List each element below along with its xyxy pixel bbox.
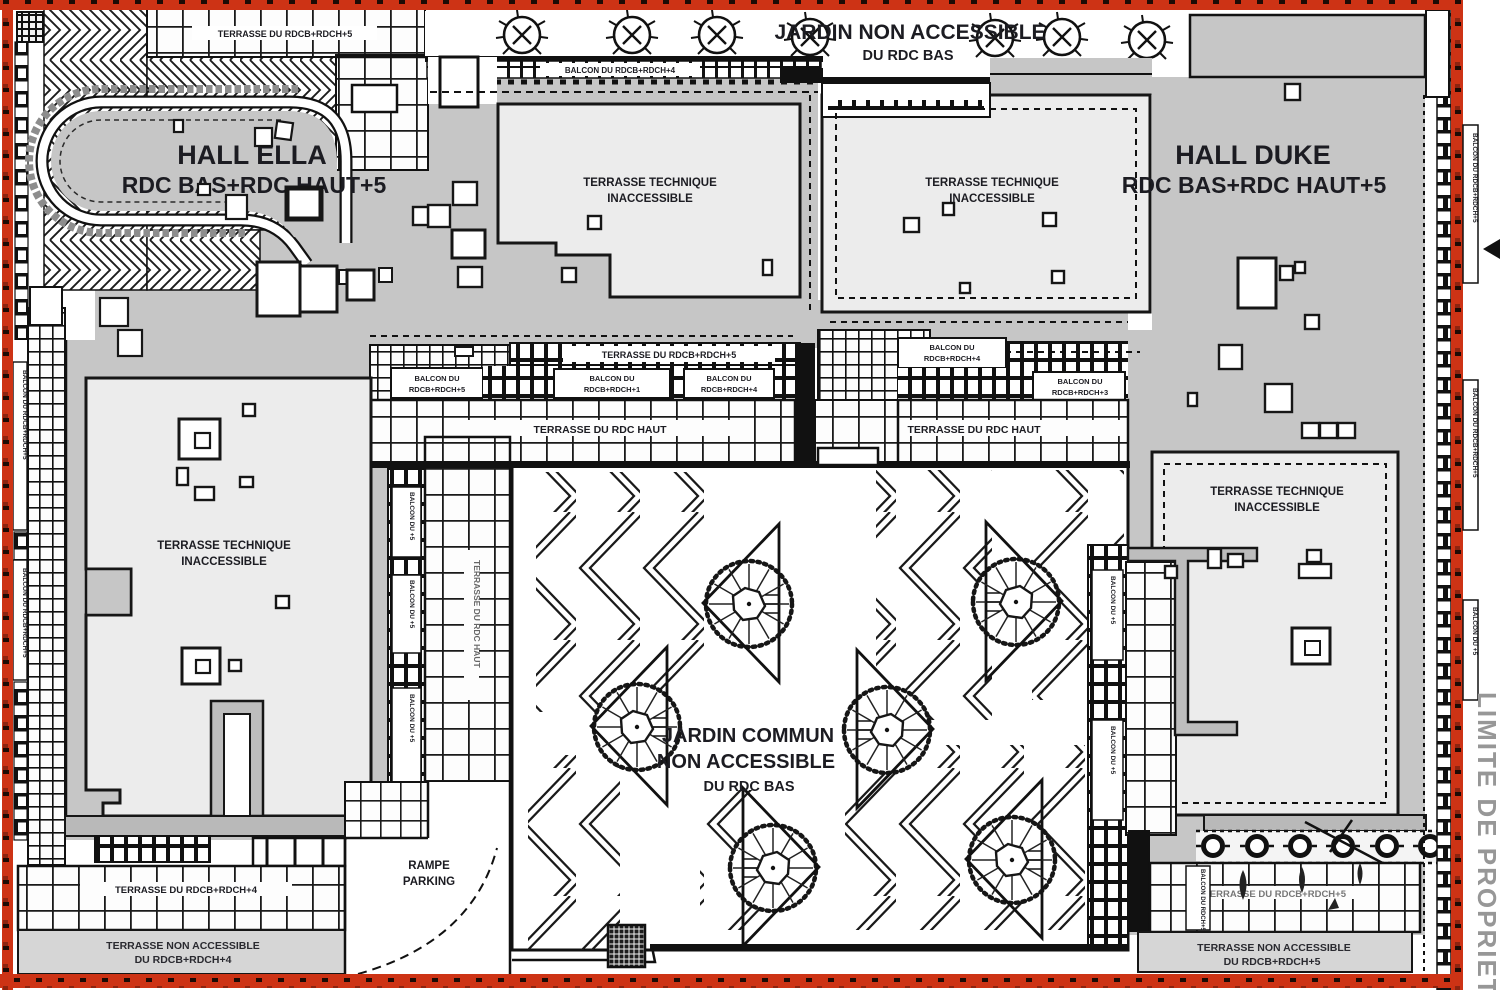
svg-text:INACCESSIBLE: INACCESSIBLE xyxy=(607,193,693,205)
svg-text:TERRASSE TECHNIQUE: TERRASSE TECHNIQUE xyxy=(583,177,717,189)
svg-text:BALCON DU RDCB+RDCH+4: BALCON DU RDCB+RDCH+4 xyxy=(565,66,676,75)
svg-text:BALCON DU: BALCON DU xyxy=(590,374,635,383)
svg-text:TERRASSE DU RDC HAUT: TERRASSE DU RDC HAUT xyxy=(907,424,1041,436)
svg-text:BALCON DU: BALCON DU xyxy=(930,343,975,352)
svg-text:TERRASSE NON ACCESSIBLE: TERRASSE NON ACCESSIBLE xyxy=(106,940,260,952)
svg-text:BALCON DU +5: BALCON DU +5 xyxy=(1109,576,1116,625)
svg-text:RDCB+RDCH+4: RDCB+RDCH+4 xyxy=(701,385,758,394)
svg-text:TERRASSE DU RDCB+RDCH+5: TERRASSE DU RDCB+RDCH+5 xyxy=(1204,889,1347,900)
svg-text:RDCB+RDCH+1: RDCB+RDCH+1 xyxy=(584,385,640,394)
svg-text:TERRASSE DU RDCB+RDCH+5: TERRASSE DU RDCB+RDCH+5 xyxy=(602,350,737,360)
svg-text:BALCON DU: BALCON DU xyxy=(415,374,460,383)
svg-text:DU RDC BAS: DU RDC BAS xyxy=(703,779,794,795)
svg-text:BALCON DU +5: BALCON DU +5 xyxy=(408,580,415,629)
svg-text:BALCON DU RDCB+RDCH+5: BALCON DU RDCB+RDCH+5 xyxy=(1471,388,1478,478)
svg-text:RAMPE: RAMPE xyxy=(408,860,450,872)
svg-text:INACCESSIBLE: INACCESSIBLE xyxy=(181,556,267,568)
svg-text:DU RDCB+RDCH+4: DU RDCB+RDCH+4 xyxy=(135,954,232,966)
svg-text:NON ACCESSIBLE: NON ACCESSIBLE xyxy=(657,751,835,773)
svg-text:BALCON DU +5: BALCON DU +5 xyxy=(408,694,415,743)
svg-text:JARDIN COMMUN: JARDIN COMMUN xyxy=(662,725,834,747)
svg-text:INACCESSIBLE: INACCESSIBLE xyxy=(949,193,1035,205)
svg-text:TERRASSE TECHNIQUE: TERRASSE TECHNIQUE xyxy=(157,540,291,552)
svg-text:BALCON DU: BALCON DU xyxy=(1058,377,1103,386)
svg-text:BALCON DU +5: BALCON DU +5 xyxy=(1109,726,1116,775)
svg-text:TERRASSE DU RDC HAUT: TERRASSE DU RDC HAUT xyxy=(533,424,667,436)
svg-text:LIMITE DE PROPRIETE: LIMITE DE PROPRIETE xyxy=(1472,692,1500,990)
svg-text:TERRASSE TECHNIQUE: TERRASSE TECHNIQUE xyxy=(1210,486,1344,498)
svg-text:INACCESSIBLE: INACCESSIBLE xyxy=(1234,502,1320,514)
svg-text:RDCB+RDCH+5: RDCB+RDCH+5 xyxy=(409,385,465,394)
svg-text:JARDIN NON ACCESSIBLE: JARDIN NON ACCESSIBLE xyxy=(774,21,1045,44)
svg-text:RDC BAS+RDC HAUT+5: RDC BAS+RDC HAUT+5 xyxy=(1122,172,1387,198)
svg-text:TERRASSE DU RDCB+RDCH+4: TERRASSE DU RDCB+RDCH+4 xyxy=(115,885,258,896)
svg-text:BALCON DU +5: BALCON DU +5 xyxy=(1471,607,1478,656)
svg-text:HALL DUKE: HALL DUKE xyxy=(1175,140,1331,170)
svg-text:TERRASSE DU RDC HAUT: TERRASSE DU RDC HAUT xyxy=(472,560,482,668)
svg-text:PARKING: PARKING xyxy=(403,876,455,888)
svg-text:TERRASSE DU RDCB+RDCH+5: TERRASSE DU RDCB+RDCH+5 xyxy=(218,29,353,39)
svg-text:TERRASSE TECHNIQUE: TERRASSE TECHNIQUE xyxy=(925,177,1059,189)
svg-text:DU RDCB+RDCH+5: DU RDCB+RDCH+5 xyxy=(1224,956,1321,968)
svg-text:BALCON DU: BALCON DU xyxy=(707,374,752,383)
svg-text:RDCB+RDCH+4: RDCB+RDCH+4 xyxy=(924,354,981,363)
svg-text:BALCON DU +5: BALCON DU +5 xyxy=(408,492,415,541)
svg-text:HALL ELLA: HALL ELLA xyxy=(177,140,327,170)
svg-text:BALCON DU RDCH+5: BALCON DU RDCH+5 xyxy=(1199,869,1205,932)
svg-text:BALCON DU RDCB+RDCH+5: BALCON DU RDCB+RDCH+5 xyxy=(21,568,28,658)
svg-text:BALCON DU RDCB+RDCH+5: BALCON DU RDCB+RDCH+5 xyxy=(21,370,28,460)
svg-text:RDCB+RDCH+3: RDCB+RDCH+3 xyxy=(1052,388,1108,397)
svg-text:DU RDC BAS: DU RDC BAS xyxy=(862,48,953,64)
svg-text:RDC BAS+RDC HAUT+5: RDC BAS+RDC HAUT+5 xyxy=(122,172,387,198)
svg-text:BALCON DU RDCB+RDCH+5: BALCON DU RDCB+RDCH+5 xyxy=(1471,133,1478,223)
svg-text:TERRASSE NON ACCESSIBLE: TERRASSE NON ACCESSIBLE xyxy=(1197,942,1351,954)
